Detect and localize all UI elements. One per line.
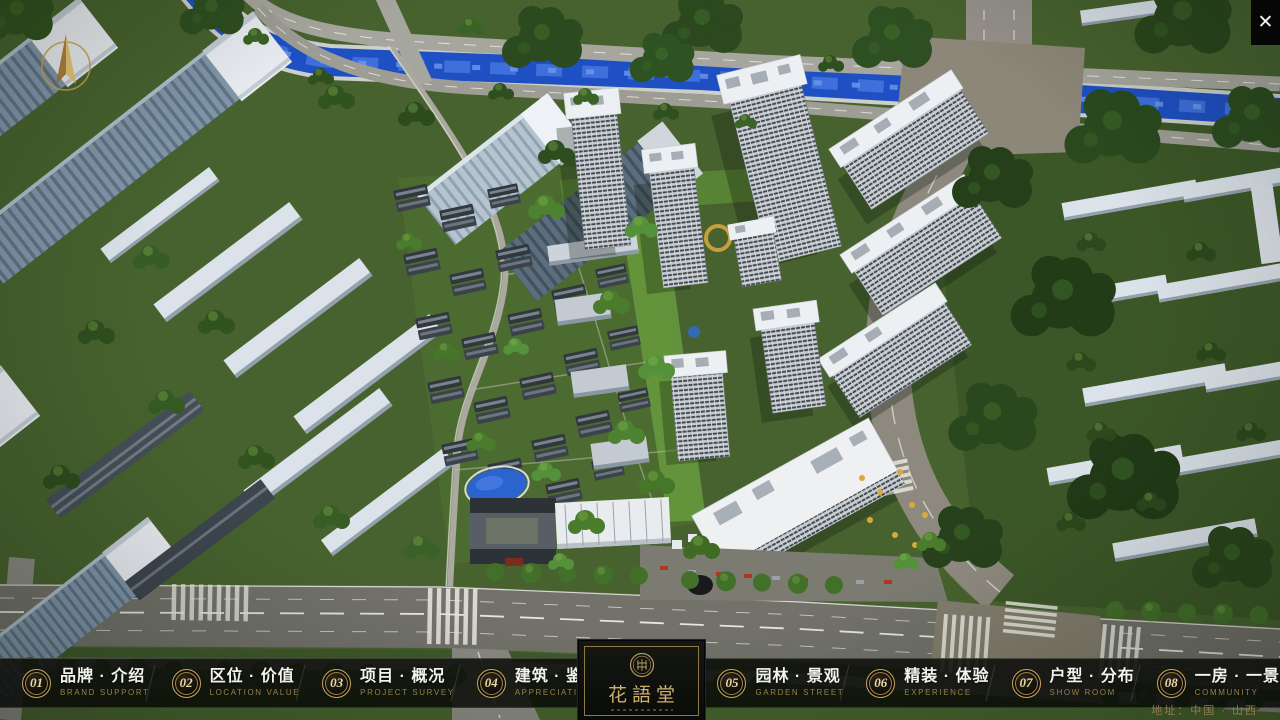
nav-label-en: SHOW ROOM: [1050, 689, 1135, 697]
nav-badge-08: 08: [1157, 669, 1186, 698]
nav-badge-07: 07: [1012, 669, 1041, 698]
nav-label-en: BRAND SUPPORT: [60, 689, 150, 697]
nav-group-left: 01 品牌 · 介绍 BRAND SUPPORT 02 区位 · 价值 LOCA…: [0, 659, 578, 707]
nav-label-zh: 项目 · 概况: [360, 669, 455, 686]
nav-label-zh: 精装 · 体验: [904, 669, 989, 686]
nav-badge-05: 05: [717, 669, 746, 698]
nav-label-en: GARDEN STREET: [755, 689, 844, 697]
nav-badge-04: 04: [477, 669, 506, 698]
nav-label-en: COMMUNITY: [1195, 689, 1280, 697]
nav-label-en: EXPERIENCE: [904, 689, 989, 697]
project-logo-panel[interactable]: 花語堂: [578, 640, 705, 720]
nav-badge-06: 06: [866, 669, 895, 698]
project-address: 地址：中国 · 山西: [1151, 702, 1258, 718]
nav-label-zh: 园林 · 景观: [755, 669, 844, 686]
nav-label-en: PROJECT SURVEY: [360, 689, 455, 697]
nav-label-zh: 户型 · 分布: [1050, 669, 1135, 686]
nav-item-floorplan[interactable]: 07 户型 · 分布 SHOW ROOM: [990, 659, 1135, 707]
presentation-screen: ✕ 01 品牌 · 介绍 BRAND SUPPORT 02 区位 · 价值 LO…: [0, 0, 1280, 720]
nav-label-en: LOCATION VALUE: [210, 689, 301, 697]
nav-badge-03: 03: [322, 669, 351, 698]
nav-item-garden[interactable]: 05 园林 · 景观 GARDEN STREET: [695, 659, 844, 707]
logo-frame: 花語堂: [584, 646, 699, 716]
nav-group-right: 05 园林 · 景观 GARDEN STREET 06 精装 · 体验 EXPE…: [695, 659, 1280, 707]
nav-label-zh: 品牌 · 介绍: [60, 669, 150, 686]
nav-badge-01: 01: [22, 669, 51, 698]
nav-badge-02: 02: [172, 669, 201, 698]
logo-caption-rule: [611, 709, 673, 711]
nav-item-brand[interactable]: 01 品牌 · 介绍 BRAND SUPPORT: [0, 659, 150, 707]
nav-label-zh: 区位 · 价值: [210, 669, 301, 686]
close-button[interactable]: ✕: [1251, 0, 1280, 45]
nav-item-location[interactable]: 02 区位 · 价值 LOCATION VALUE: [150, 659, 301, 707]
close-icon: ✕: [1258, 11, 1274, 34]
project-seal-icon: [629, 652, 655, 678]
nav-label-zh: 一房 · 一景: [1195, 669, 1280, 686]
nav-item-interior[interactable]: 06 精装 · 体验 EXPERIENCE: [844, 659, 989, 707]
nav-item-views[interactable]: 08 一房 · 一景 COMMUNITY: [1135, 659, 1280, 707]
project-logo-title: 花語堂: [608, 680, 680, 707]
masterplan-render: [0, 0, 1280, 720]
nav-item-project[interactable]: 03 项目 · 概况 PROJECT SURVEY: [300, 659, 455, 707]
